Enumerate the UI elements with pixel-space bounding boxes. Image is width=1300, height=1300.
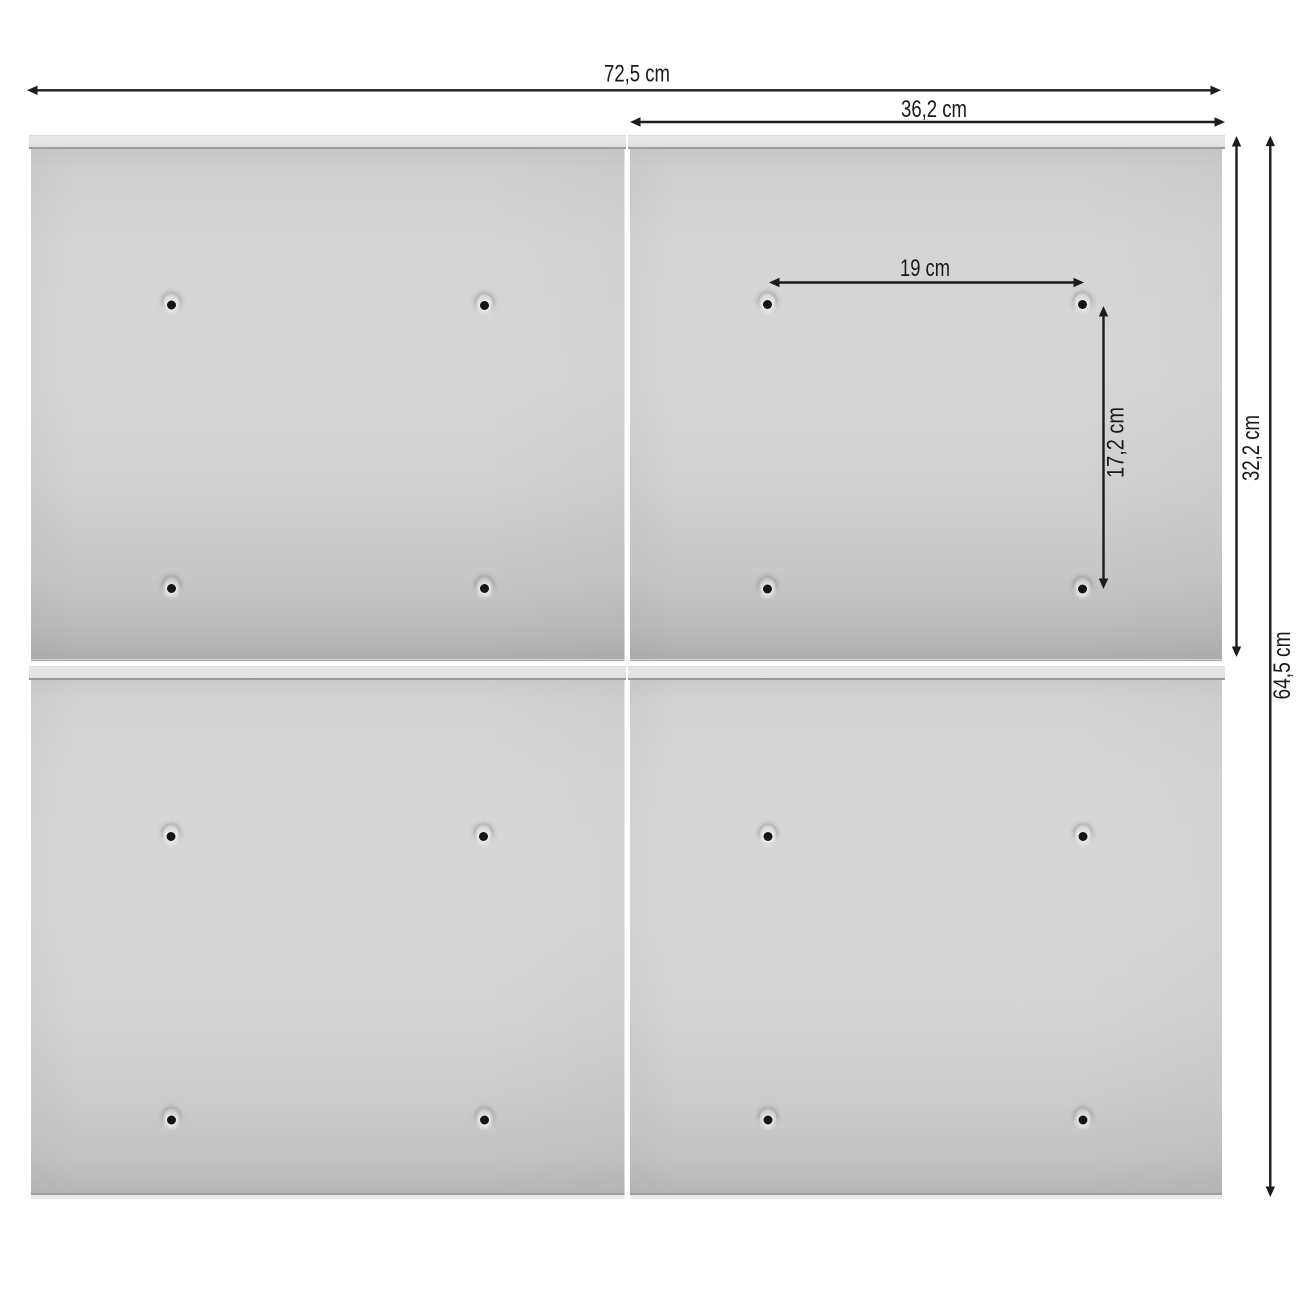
svg-text:36,2 cm: 36,2 cm bbox=[901, 96, 967, 123]
svg-text:72,5 cm: 72,5 cm bbox=[604, 61, 670, 88]
svg-text:32,2 cm: 32,2 cm bbox=[1238, 415, 1265, 481]
svg-text:19 cm: 19 cm bbox=[900, 255, 950, 282]
svg-text:17,2 cm: 17,2 cm bbox=[1103, 407, 1130, 478]
svg-text:64,5 cm: 64,5 cm bbox=[1269, 632, 1296, 700]
